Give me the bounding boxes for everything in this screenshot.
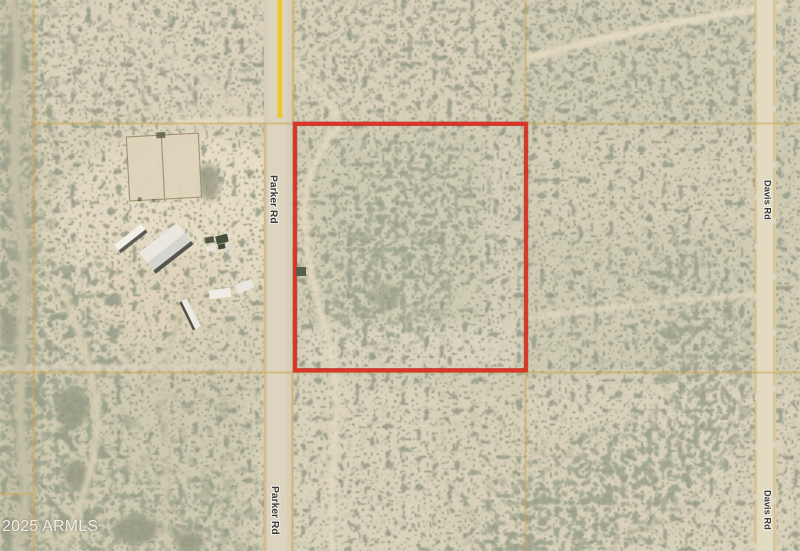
svg-text:Davis Rd: Davis Rd xyxy=(763,490,773,530)
svg-text:Parker Rd: Parker Rd xyxy=(269,486,280,535)
svg-text:Davis Rd: Davis Rd xyxy=(763,180,773,220)
svg-text:Parker Rd: Parker Rd xyxy=(268,175,279,224)
svg-text:2025 ARMLS: 2025 ARMLS xyxy=(2,518,98,535)
